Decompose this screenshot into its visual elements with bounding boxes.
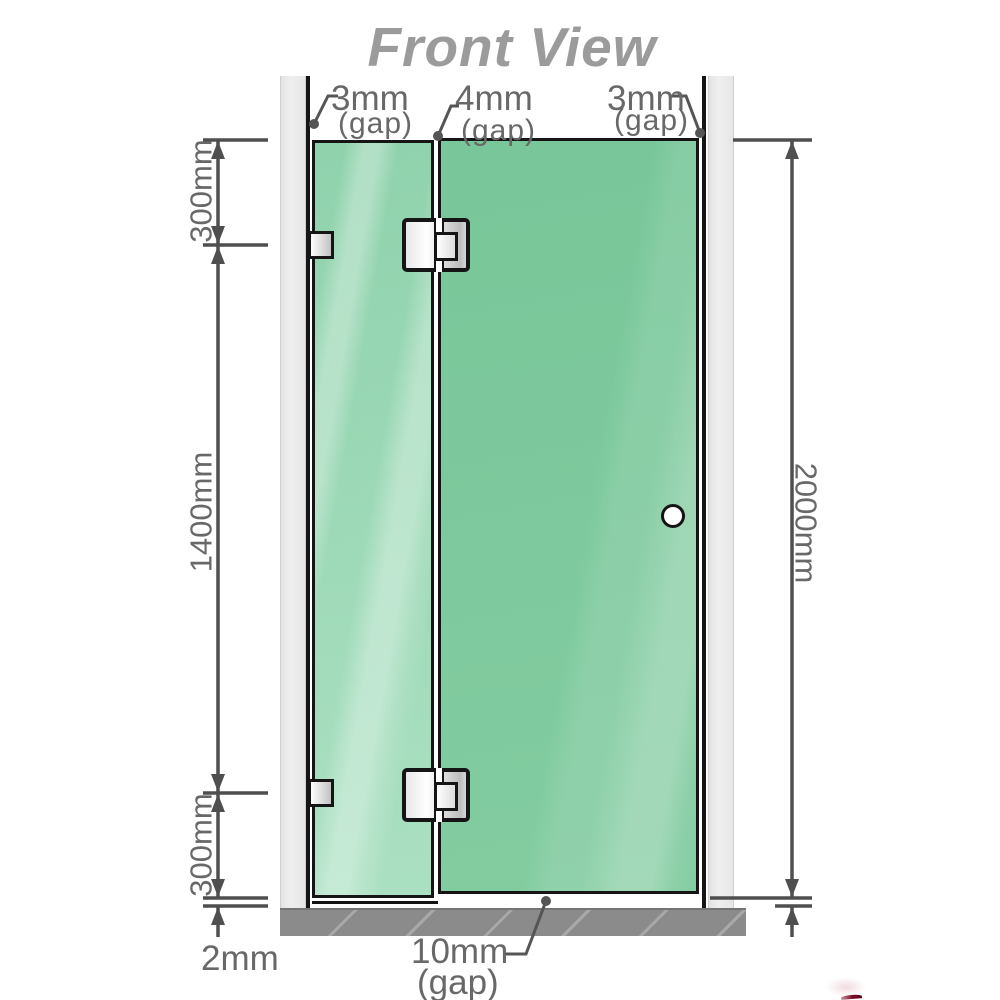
door-handle-knob [661, 504, 685, 528]
panel-bottom-seal [312, 901, 438, 904]
segment-middle-label: 1400mm [186, 452, 217, 573]
gap-middle-value: 4mm [455, 81, 533, 116]
door-glass-panel [438, 138, 699, 894]
logo-remnant [841, 994, 862, 1000]
floor-clearance-label: 2mm [201, 941, 279, 976]
hinge-knuckle [434, 232, 458, 261]
wall-post-left [280, 76, 306, 908]
wall-bracket-bottom [308, 779, 334, 807]
glass-hinge-top [402, 218, 470, 272]
total-height-label: 2000mm [791, 463, 822, 584]
logo-haze [826, 977, 866, 997]
page-title: Front View [367, 20, 656, 75]
segment-top-label: 300mm [186, 139, 217, 242]
glass-hinge-bottom [402, 768, 470, 822]
gap-left-suffix: (gap) [338, 109, 413, 139]
wall-channel-line-right [702, 76, 706, 908]
segment-bottom-label: 300mm [186, 793, 217, 896]
wall-post-right [708, 76, 734, 908]
door-floor-gap-suffix: (gap) [417, 965, 499, 1000]
front-view-diagram: Front View [0, 0, 1000, 1000]
wall-bracket-top [308, 231, 334, 259]
gap-middle-suffix: (gap) [461, 116, 536, 146]
hinge-knuckle [434, 782, 458, 811]
floor-base [280, 908, 746, 936]
gap-right-suffix: (gap) [614, 106, 689, 136]
